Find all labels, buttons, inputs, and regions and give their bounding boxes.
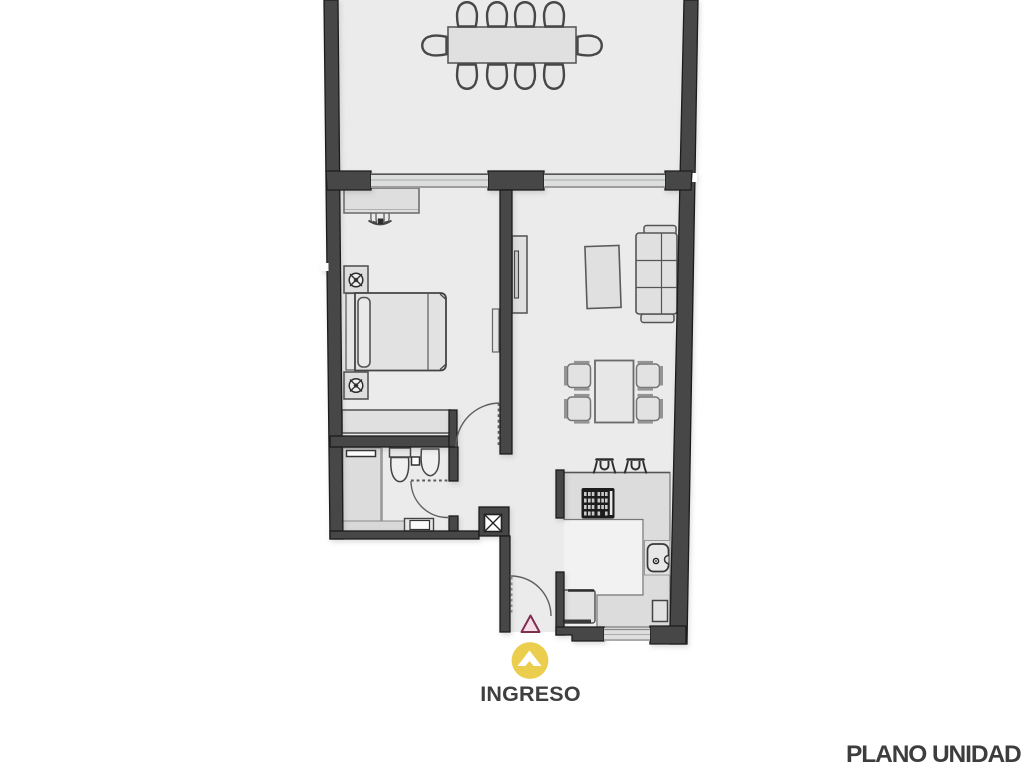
svg-text:PLANO UNIDAD: PLANO UNIDAD xyxy=(846,741,1021,768)
svg-text:INGRESO: INGRESO xyxy=(480,682,581,706)
